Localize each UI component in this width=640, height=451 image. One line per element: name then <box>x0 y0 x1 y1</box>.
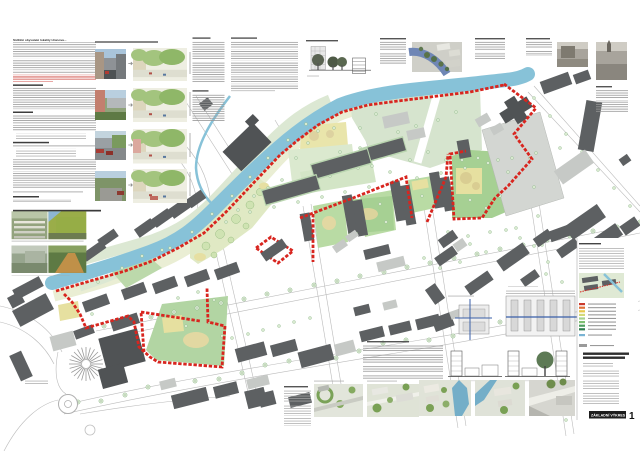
svg-text:Sídliště obyvatelé lokality Hr: Sídliště obyvatelé lokality Hranova... <box>13 38 67 42</box>
svg-text:ZÁKLADNÍ VÝKRES: ZÁKLADNÍ VÝKRES <box>591 413 626 418</box>
svg-text:1: 1 <box>629 411 635 422</box>
